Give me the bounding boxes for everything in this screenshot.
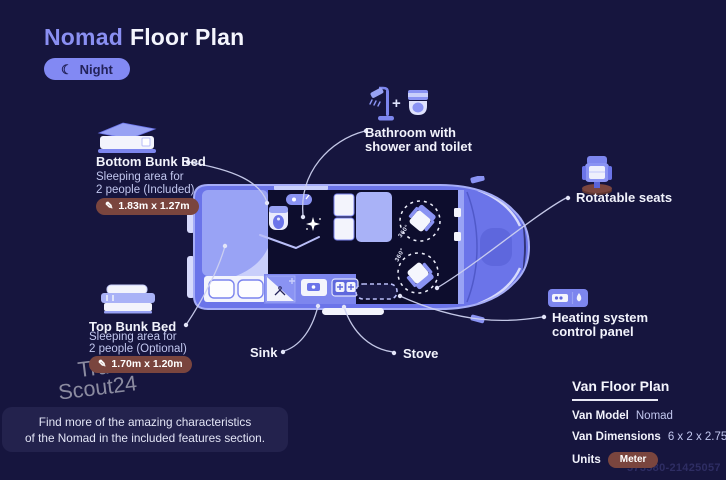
page-title: Nomad Floor Plan	[44, 24, 244, 51]
pillow	[209, 280, 234, 298]
side-mirror	[470, 176, 485, 184]
toilet-icon	[404, 88, 432, 122]
moon-icon: ☾	[61, 63, 73, 76]
side-mirror	[470, 314, 485, 323]
stove-label: Stove	[403, 346, 438, 361]
dinette-bed	[356, 192, 392, 242]
dinette-cushion	[334, 218, 354, 240]
top-bunk-dimensions-badge: ✎ 1.70m x 1.20m	[89, 356, 192, 373]
top-bunk-bed-icon	[97, 283, 159, 317]
footer-note: Find more of the amazing characteristics…	[2, 407, 288, 452]
bottom-bunk-title: Bottom Bunk Bed	[96, 154, 206, 169]
page-title-accent: Nomad	[44, 24, 123, 51]
van-model-value: Nomad	[636, 410, 673, 422]
heating-label-2: control panel	[552, 324, 634, 339]
top-bunk-desc-2: 2 people (Optional)	[89, 343, 187, 355]
van-dimensions-label: Van Dimensions	[572, 431, 661, 443]
pillow	[238, 280, 263, 298]
heating-label-1: Heating system	[552, 310, 648, 325]
footer-note-line1: Find more of the amazing characteristics	[39, 415, 251, 429]
bathroom-label-2: shower and toilet	[365, 139, 472, 154]
pencil-icon: ✎	[105, 201, 113, 212]
heating-control-icon	[548, 289, 588, 307]
info-panel-title: Van Floor Plan	[572, 378, 724, 394]
bottom-bunk-bed-icon	[95, 119, 159, 157]
top-bunk-desc-1: Sleeping area for	[89, 331, 177, 343]
cab-pillar	[458, 190, 464, 304]
units-value-badge[interactable]: Meter	[608, 452, 659, 468]
units-label: Units	[572, 454, 601, 466]
van-floor-plan-infographic: Truck Scout24 Nomad Floor Plan ☾ Night	[0, 0, 726, 480]
van-model-label: Van Model	[572, 410, 629, 422]
dinette-cushion	[334, 194, 354, 216]
rotatable-seats-label: Rotatable seats	[576, 190, 672, 205]
pencil-icon: ✎	[98, 359, 106, 370]
bottom-bunk-desc-1: Sleeping area for	[96, 171, 184, 183]
bottom-bunk-desc-2: 2 people (Included)	[96, 184, 194, 196]
van-dimensions-row: Van Dimensions 6 x 2 x 2.75 m	[572, 431, 724, 443]
units-row: Units Meter	[572, 452, 724, 468]
night-mode-label: Night	[80, 62, 113, 77]
footer-note-line2: of the Nomad in the included features se…	[25, 431, 265, 445]
van-dimensions-value: 6 x 2 x 2.75 m	[668, 431, 726, 443]
heating-panel-location	[356, 284, 397, 299]
van-info-panel: Van Floor Plan Van Model Nomad Van Dimen…	[572, 378, 724, 468]
plus-icon: +	[392, 95, 401, 112]
night-mode-toggle[interactable]: ☾ Night	[44, 58, 130, 80]
bathroom-label-1: Bathroom with	[365, 125, 456, 140]
hood	[480, 228, 512, 266]
bottom-bunk-dimensions-badge: ✎ 1.83m x 1.27m	[96, 198, 199, 215]
sink-label: Sink	[250, 345, 277, 360]
page-title-rest: Floor Plan	[130, 24, 244, 51]
info-panel-divider	[572, 399, 658, 401]
entry-step	[322, 308, 384, 315]
van-model-row: Van Model Nomad	[572, 410, 724, 422]
van-floor-plan-drawing: 360° 360°	[180, 176, 536, 324]
